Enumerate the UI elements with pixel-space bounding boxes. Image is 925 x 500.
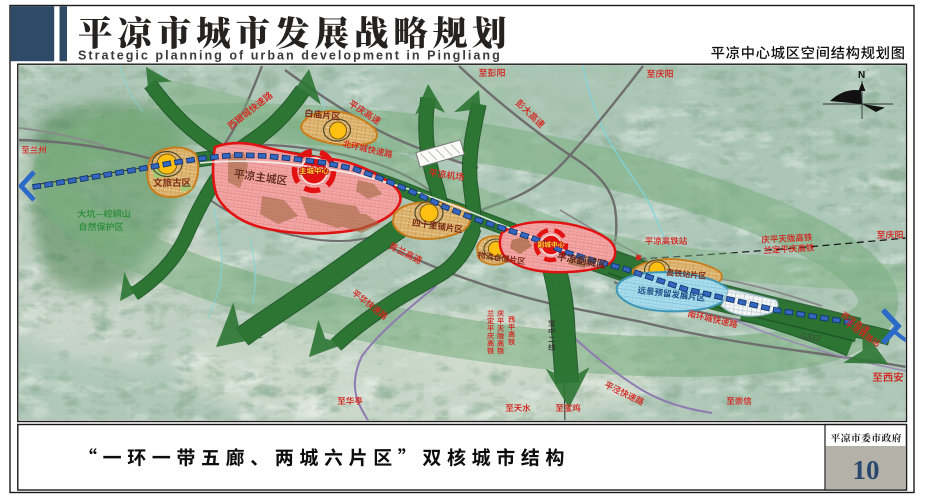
svg-text:N: N <box>858 70 865 81</box>
svg-text:Strategic planning of urban de: Strategic planning of urban development … <box>78 49 502 63</box>
svg-text:10: 10 <box>853 455 880 485</box>
